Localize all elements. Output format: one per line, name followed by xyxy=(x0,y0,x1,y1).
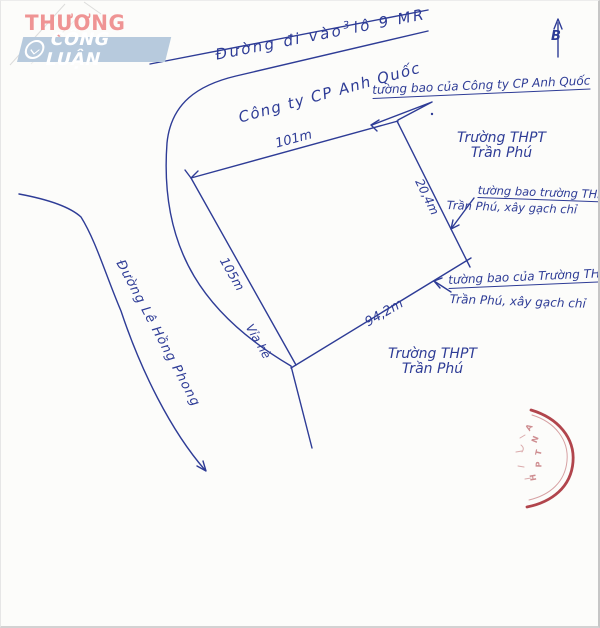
stamp-letter: P xyxy=(534,461,543,467)
company-wall-leader xyxy=(372,102,432,125)
school-bottom-line2: Trần Phú xyxy=(380,362,485,377)
stamp-mark xyxy=(516,451,522,452)
watermark-band: CÔNG LUẬN xyxy=(17,37,171,62)
school-bottom-line1: Trường THPT xyxy=(380,347,485,362)
parcel-top-edge xyxy=(191,121,398,178)
street-left-edge xyxy=(19,194,205,470)
parcel-left-edge xyxy=(191,178,296,365)
stamp-mark xyxy=(518,466,524,467)
school-label-right: Trường THPT Trần Phú xyxy=(449,131,554,160)
publisher-watermark: THƯƠNG HIỆU CÔNG LUẬN xyxy=(7,5,177,65)
school-right-line2: Trần Phú xyxy=(449,146,554,161)
school-right-line1: Trường THPT xyxy=(449,131,554,146)
company-wall-arrowhead xyxy=(371,120,379,131)
scanned-site-sketch: THƯƠNG HIỆU CÔNG LUẬN B Đường đi vào3lô … xyxy=(0,0,600,628)
watermark-line2: CÔNG LUẬN xyxy=(43,30,173,70)
school-label-bottom: Trường THPT Trần Phú xyxy=(380,347,485,376)
ink-dot xyxy=(431,113,433,115)
north-label: B xyxy=(551,30,561,44)
logo-emblem-icon xyxy=(23,40,47,59)
stamp-mark xyxy=(520,435,525,438)
